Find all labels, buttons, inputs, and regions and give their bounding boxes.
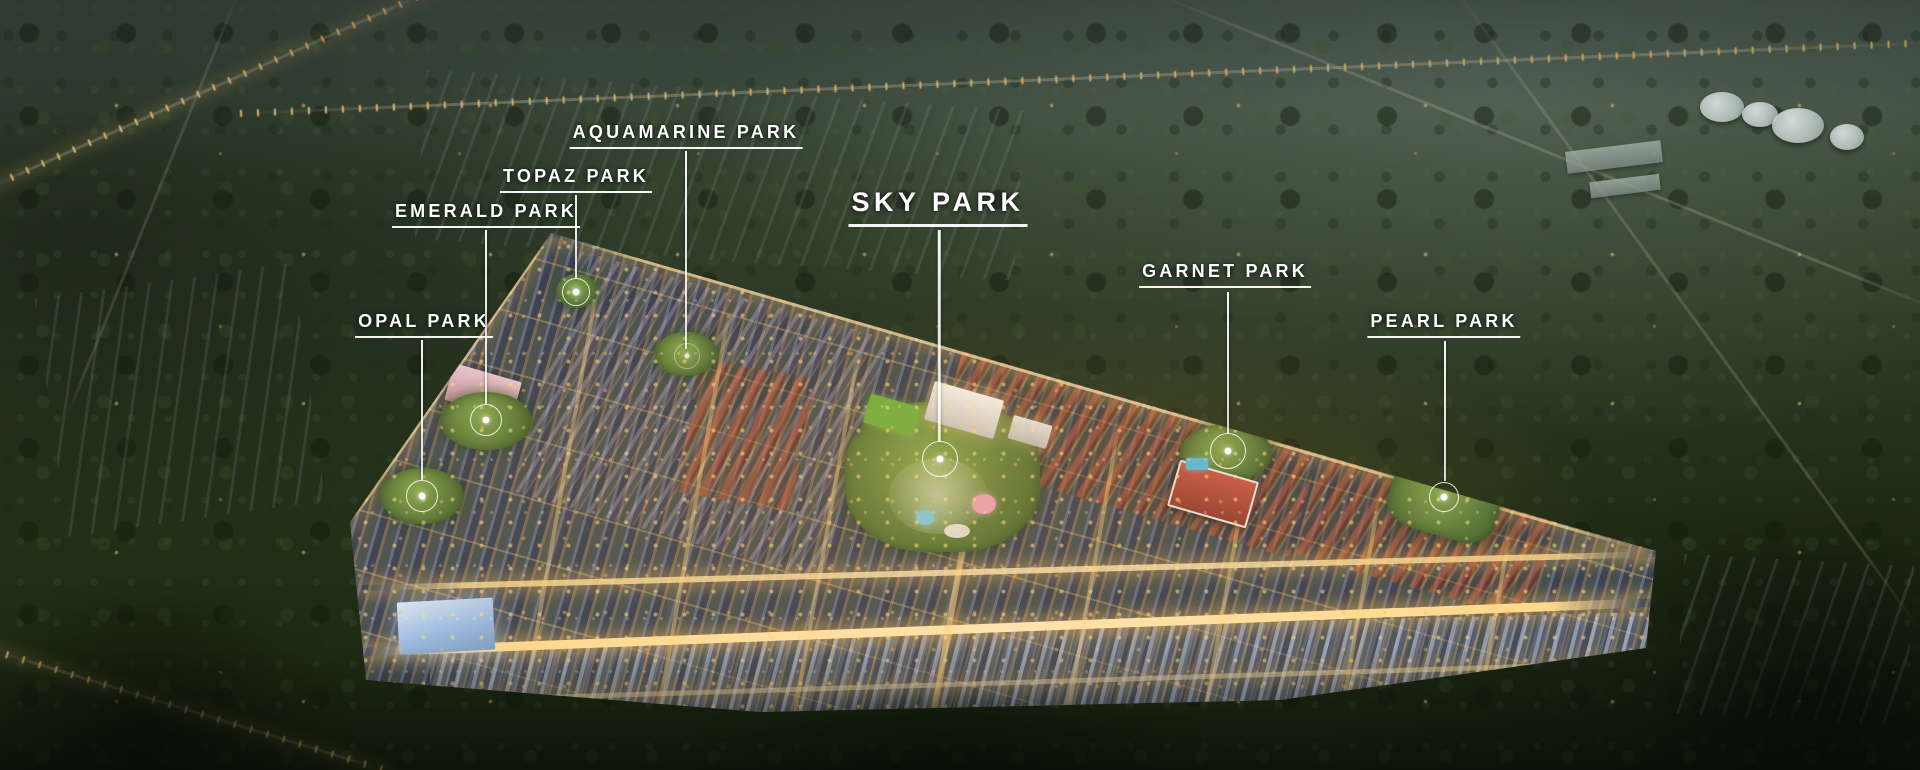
- label-opal-park[interactable]: OPAL PARK: [355, 312, 493, 338]
- leader-line-opal-park: [421, 340, 423, 480]
- leader-line-pearl-park: [1444, 341, 1446, 481]
- aerial-masterplan-scene: OPAL PARK EMERALD PARK TOPAZ PARK AQUAMA…: [0, 0, 1920, 770]
- label-aquamarine-park[interactable]: AQUAMARINE PARK: [570, 123, 803, 149]
- label-sky-park-text: SKY PARK: [851, 187, 1024, 217]
- label-garnet-park[interactable]: GARNET PARK: [1139, 262, 1311, 288]
- marker-aquamarine-park: [674, 343, 700, 369]
- label-sky-park[interactable]: SKY PARK: [848, 189, 1027, 227]
- marker-emerald-park: [470, 404, 502, 436]
- vignette-overlay: [0, 0, 1920, 770]
- leader-line-aquamarine-park: [685, 151, 687, 349]
- label-aquamarine-park-text: AQUAMARINE PARK: [573, 122, 800, 142]
- leader-line-sky-park: [938, 230, 941, 442]
- label-opal-park-text: OPAL PARK: [358, 311, 490, 331]
- label-topaz-park-text: TOPAZ PARK: [503, 166, 649, 186]
- marker-garnet-park: [1210, 433, 1246, 469]
- label-emerald-park-text: EMERALD PARK: [395, 201, 577, 221]
- leader-line-garnet-park: [1227, 292, 1229, 434]
- label-topaz-park[interactable]: TOPAZ PARK: [500, 167, 652, 193]
- marker-topaz-park: [562, 278, 590, 306]
- label-pearl-park[interactable]: PEARL PARK: [1367, 312, 1520, 338]
- marker-pearl-park: [1429, 482, 1459, 512]
- marker-opal-park: [406, 480, 438, 512]
- label-emerald-park[interactable]: EMERALD PARK: [392, 202, 580, 228]
- marker-sky-park: [922, 441, 958, 477]
- label-garnet-park-text: GARNET PARK: [1142, 261, 1308, 281]
- label-pearl-park-text: PEARL PARK: [1370, 311, 1517, 331]
